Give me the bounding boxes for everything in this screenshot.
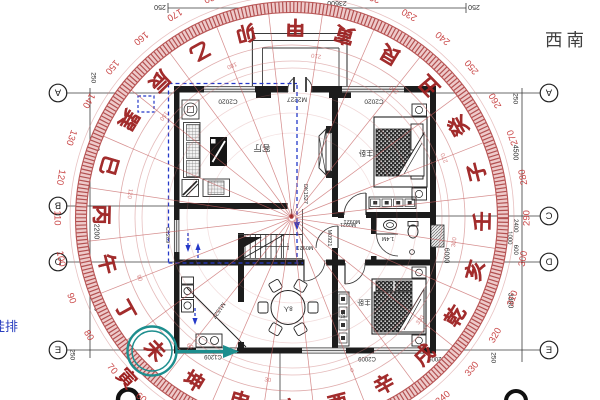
svg-text:E: E <box>546 343 552 354</box>
svg-text:2200: 2200 <box>93 224 100 240</box>
svg-text:西南: 西南 <box>545 30 588 50</box>
svg-text:主卧: 主卧 <box>358 149 373 159</box>
svg-text:290: 290 <box>522 210 533 226</box>
svg-text:250: 250 <box>154 3 166 10</box>
svg-text:D: D <box>545 255 552 266</box>
svg-text:E: E <box>55 343 61 354</box>
svg-text:丙: 丙 <box>90 204 112 224</box>
svg-text:C1209: C1209 <box>204 353 222 359</box>
svg-text:甲: 甲 <box>285 16 305 38</box>
svg-text:110: 110 <box>51 210 62 225</box>
svg-text:A: A <box>54 86 61 97</box>
svg-text:挂排: 挂排 <box>0 319 18 334</box>
svg-text:B: B <box>55 199 61 210</box>
svg-text:DK1527: DK1527 <box>302 184 308 204</box>
svg-text:8人: 8人 <box>283 305 292 312</box>
svg-text:600: 600 <box>512 245 518 256</box>
svg-text:主卧: 主卧 <box>357 298 371 307</box>
svg-text:M0921: M0921 <box>326 230 332 247</box>
svg-text:C: C <box>545 209 552 220</box>
svg-text:250: 250 <box>512 93 519 104</box>
svg-text:衣: 衣 <box>339 314 346 319</box>
svg-text:A: A <box>545 86 552 97</box>
svg-text:客厅: 客厅 <box>253 143 271 153</box>
svg-text:250: 250 <box>468 3 480 10</box>
svg-text:M0921: M0921 <box>297 244 314 250</box>
svg-text:250: 250 <box>490 352 497 363</box>
svg-text:1.4M: 1.4M <box>381 235 394 241</box>
svg-text:C2020: C2020 <box>218 97 238 104</box>
svg-text:250: 250 <box>90 72 97 83</box>
svg-text:壬: 壬 <box>471 211 494 231</box>
svg-text:250: 250 <box>69 349 76 360</box>
svg-text:C2020: C2020 <box>364 97 384 104</box>
